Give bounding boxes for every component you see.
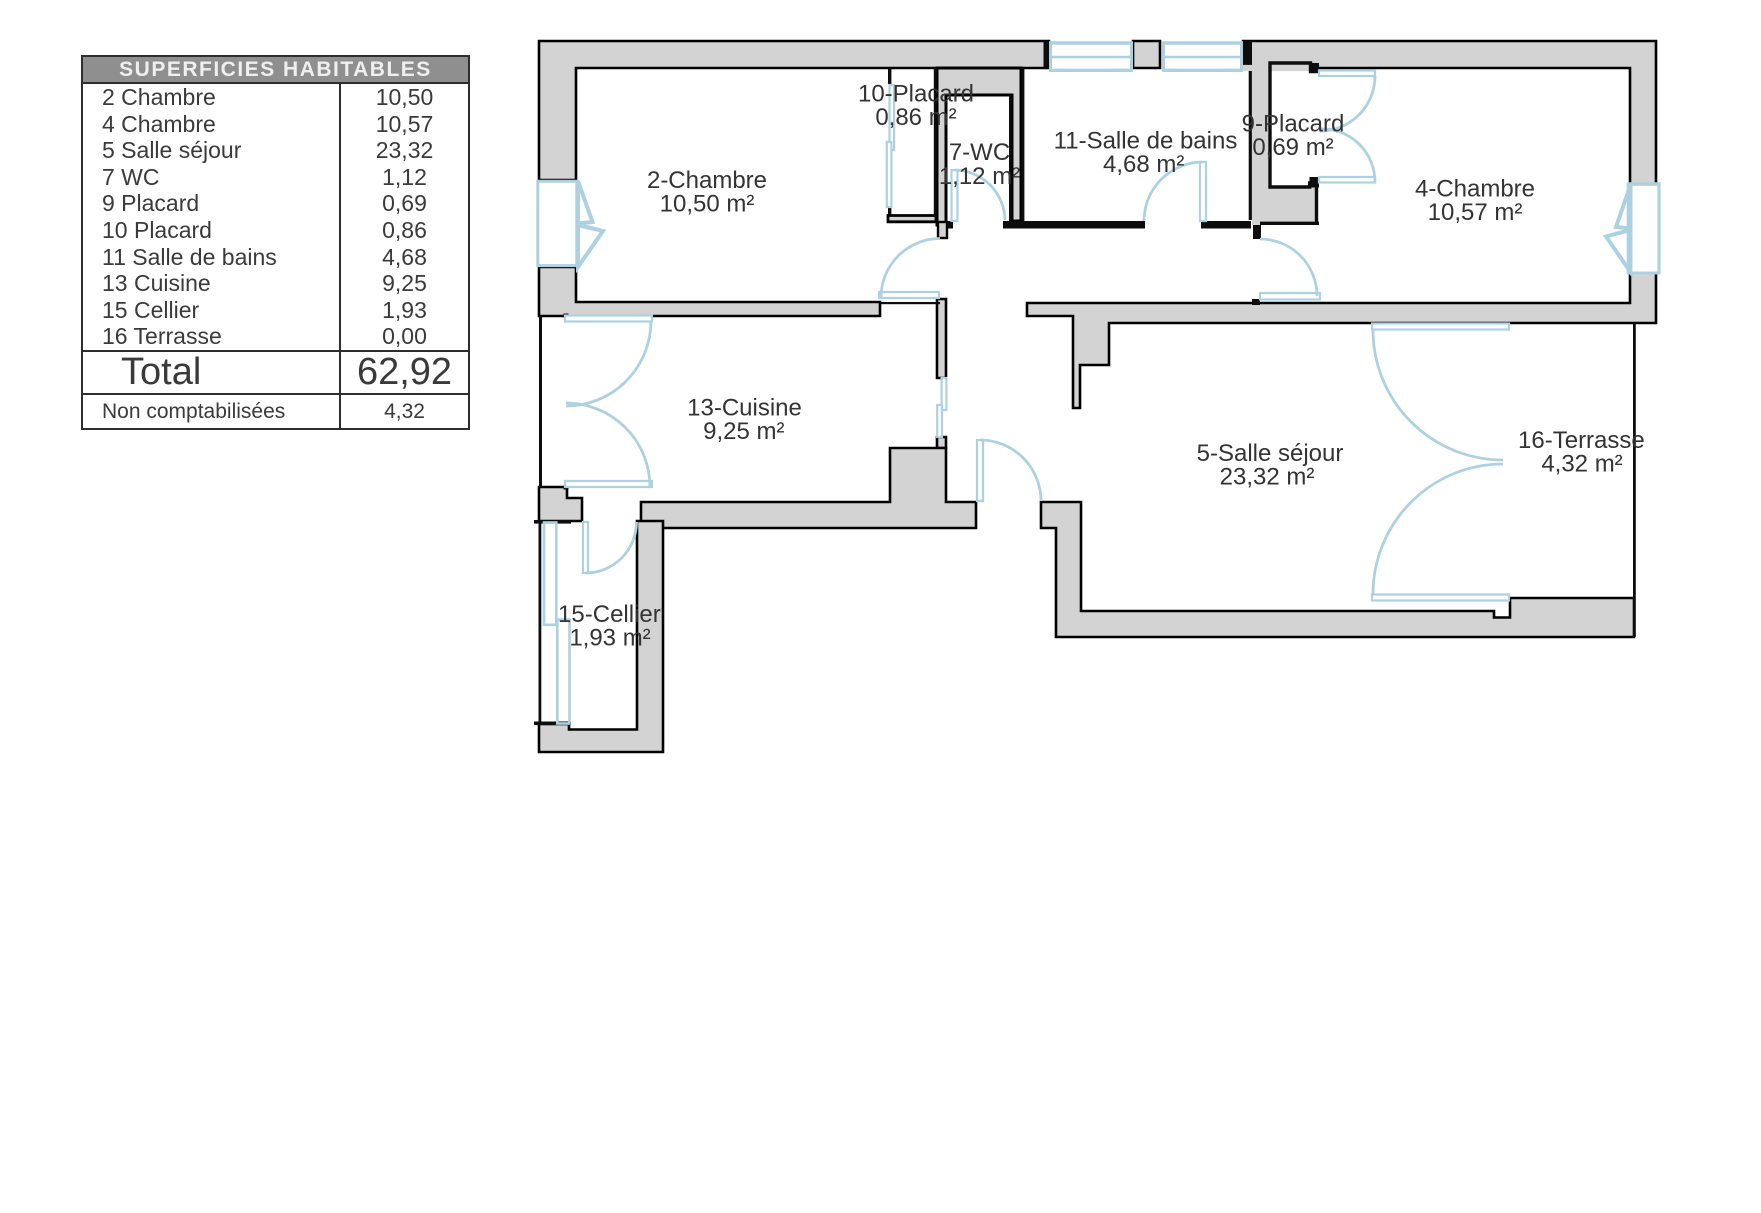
svg-text:7-WC: 7-WC: [949, 139, 1010, 166]
svg-text:0,86 m²: 0,86 m²: [875, 104, 956, 131]
svg-text:0,69 m²: 0,69 m²: [1252, 134, 1333, 161]
svg-text:4,68 m²: 4,68 m²: [1103, 151, 1184, 178]
svg-text:4,32 m²: 4,32 m²: [1541, 450, 1622, 477]
svg-text:1,12 m²: 1,12 m²: [939, 163, 1020, 190]
svg-text:10,57 m²: 10,57 m²: [1428, 199, 1523, 226]
svg-text:1,93 m²: 1,93 m²: [569, 624, 650, 651]
svg-text:23,32 m²: 23,32 m²: [1220, 464, 1315, 491]
svg-text:10,50 m²: 10,50 m²: [660, 191, 755, 218]
svg-text:9,25 m²: 9,25 m²: [703, 418, 784, 445]
